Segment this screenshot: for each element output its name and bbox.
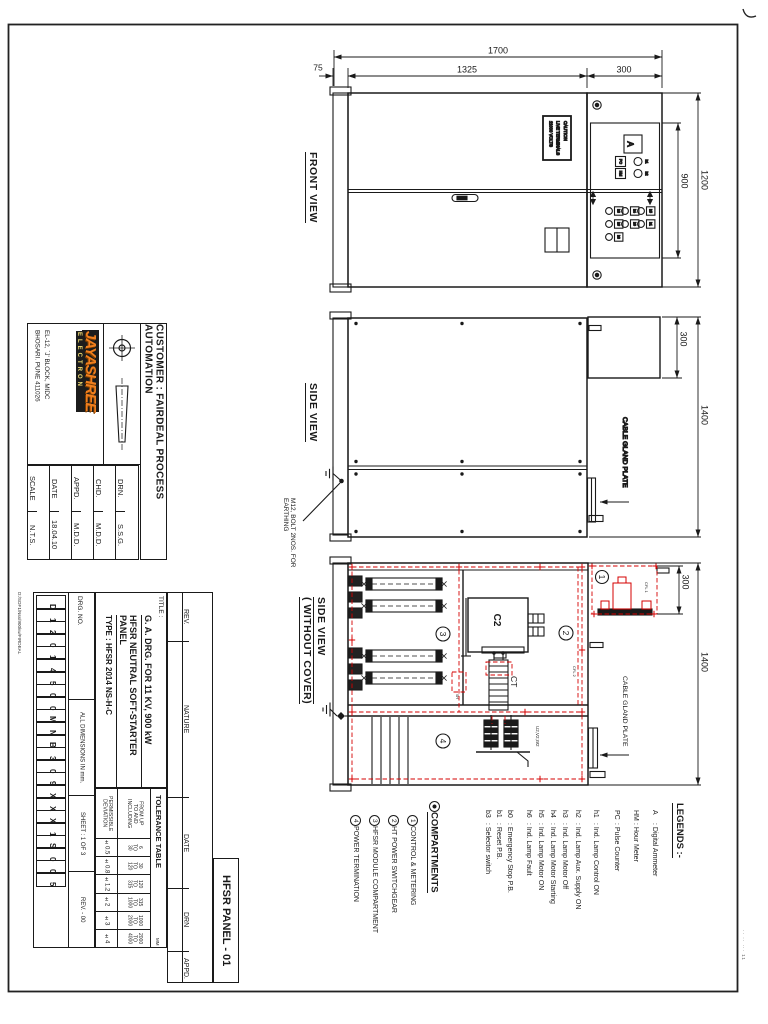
compartment-item: 3HFSR MODULE COMPARTMENT	[367, 815, 380, 933]
approval-grid: SCALEN.T.S. DATE18.04.10 APPD.M.D.D. CHD…	[27, 465, 141, 560]
tolerance-heading: TOLERANCE TABLE	[151, 789, 163, 868]
svg-text:1325: 1325	[457, 65, 477, 75]
termination-coils	[476, 715, 530, 767]
cfl2-label: CFL 2	[572, 666, 577, 678]
title-label: TITLE :	[157, 596, 164, 617]
legend-item: h1: Ind. Lamp Control ON	[592, 810, 599, 895]
side-gland-label: CABLE GLAND PLATE	[621, 417, 628, 488]
side-view: CABLE GLAND PLATE 300 1400	[303, 312, 710, 541]
sheet-no: SHEET : 1 OF 3	[69, 796, 95, 872]
svg-text:1400: 1400	[700, 405, 710, 425]
pc-label: PC	[619, 159, 623, 164]
svg-text:1200: 1200	[700, 170, 710, 190]
svg-text:900: 900	[680, 173, 690, 188]
legend-item: b0: Emergency Stop P.B.	[506, 810, 513, 893]
lamp-h2-label: h2	[645, 172, 649, 176]
earthing-note: M12, BOLT 2NOS. FOR EARTHING	[282, 498, 296, 567]
revision-table: REV. NATURE DATE DRN APPD.	[167, 592, 213, 983]
appd-value: M.D.D.	[72, 512, 81, 558]
hfsr-module-assembly	[349, 576, 447, 690]
hm-label: HM	[619, 171, 623, 177]
drg-no-boxes: D 1 2 0 1 4 5 0 0 M N B 3 0 9 X X X 1 S …	[36, 597, 66, 887]
compartment-2-marker: 2	[561, 631, 571, 636]
open-dimensions: 300 1400	[588, 563, 710, 785]
tolerance-table: TOLERANCE TABLE MM FROM UP TO AND INCLUD…	[95, 788, 167, 948]
caution-line2: LIVE TERMINALS	[556, 121, 561, 155]
drn-col-header: DRN	[182, 889, 189, 952]
chd-value: M.D.D.	[94, 512, 103, 558]
drawing-title: G. A. DRG. FOR 11 KV, 900 kW HFSR NEUTRA…	[100, 615, 153, 787]
legend-item: PC: Pulse Counter	[613, 810, 620, 871]
file-path: D:/SOF1/Nss/900kw/FIRDEAL	[17, 592, 22, 654]
appd-col-header: APPD.	[182, 952, 189, 985]
company-address: EL-12, `J' BLOCK, MIDC BHOSARI. PUNE 411…	[32, 330, 51, 402]
lamp-h1-label: h1	[645, 160, 649, 164]
front-view-label: FRONT VIEW	[305, 152, 319, 223]
legend-item: b1: Reset P.B.	[495, 810, 502, 859]
projection-symbol-icon	[104, 324, 140, 464]
drawing-sheet: CAUTION LIVE TERMINALS 11000 VOLTS A PC …	[0, 0, 768, 1024]
company-name: JAYASHREE	[82, 330, 99, 412]
svg-text:h6: h6	[617, 222, 621, 226]
compartment-item: 2HT POWER SWITCHGEAR	[386, 815, 399, 913]
compartment-item: 1CONTROL & METERING	[405, 815, 418, 905]
c2-label: C2	[491, 614, 502, 627]
svg-text:300: 300	[616, 65, 631, 75]
side-view-open-label: SIDE VIEW ( WITHOUT COVER)	[299, 597, 327, 704]
legend-item: h4: Ind. Lamp Motor Starting	[549, 810, 556, 904]
compartment-item: 4POWER TERMINATION	[348, 815, 361, 902]
svg-text:h4: h4	[633, 209, 637, 213]
ct-label: CT	[509, 676, 519, 687]
sh-label: SH	[455, 694, 459, 699]
nature-col-header: NATURE	[182, 642, 189, 798]
side-view-open: 3 C2 2 CFL 2 CT 1 CFL 1 4	[323, 557, 710, 791]
scale-label: SCALE	[28, 466, 37, 512]
cfl1-label: CFL 1	[644, 582, 649, 594]
tolerance-unit: MM	[155, 938, 160, 946]
svg-text:h3: h3	[617, 209, 621, 213]
svg-text:h5: h5	[649, 209, 653, 213]
earthing-symbol-open	[323, 703, 348, 721]
svg-text:1700: 1700	[488, 46, 508, 56]
svg-text:b1: b1	[649, 222, 653, 226]
panel-name: HFSR PANEL - 01	[213, 858, 239, 983]
legend-item: h5: Ind. Lamp Motor ON	[537, 810, 544, 890]
cfl1-component	[601, 577, 651, 609]
ammeter-label: A	[626, 141, 635, 147]
caution-line1: CAUTION	[563, 121, 568, 141]
drg-no-strip: D 1 2 0 1 4 5 0 0 M N B 3 0 9 X X X 1 S …	[33, 592, 95, 948]
front-view: CAUTION LIVE TERMINALS 11000 VOLTS A PC …	[313, 46, 709, 293]
svg-text:1400: 1400	[700, 652, 710, 672]
edge-stamp: ·· ·· ··· 11	[741, 930, 746, 961]
svg-text:75: 75	[313, 63, 323, 73]
date-label: DATE	[50, 466, 59, 512]
legends-heading: LEGENDS :-	[672, 803, 685, 858]
side-dimensions: 300 1400	[589, 317, 710, 537]
company-logo: JAYASHREE ELECTRON	[76, 330, 99, 412]
front-dimensions: 1700 1325 300 75 900 1200	[313, 46, 709, 288]
drn-label: DRN.	[116, 466, 125, 512]
bullseye-icon	[429, 801, 440, 812]
tolerance-range-col: FROM UP TO AND INCLUDING 6 TO 30 30 TO 1…	[117, 789, 151, 947]
date-value: 18.04.10	[50, 512, 59, 558]
compartment-1-marker: 1	[597, 575, 607, 580]
title-box: TITLE : G. A. DRG. FOR 11 KV, 900 kW HFS…	[95, 592, 167, 788]
tolerance-dev-col: PERMISSIBLE DEVIATION ±0.5 ±0.8 ±1.2 ±2 …	[96, 789, 117, 947]
legend-item: h3: Ind. Lamp Motor Off	[561, 810, 568, 889]
company-box: JAYASHREE ELECTRON EL-12, `J' BLOCK, MID…	[27, 323, 104, 465]
side-view-label: SIDE VIEW	[305, 383, 319, 442]
appd-label: APPD.	[72, 466, 81, 512]
all-dims-note: ALL DIMENSIONS IN mm.	[68, 699, 95, 796]
legend-item: h6: Ind. Lamp Fault	[525, 810, 532, 876]
customer-strip: CUSTOMER : FAIRDEAL PROCESS AUTOMATION	[140, 323, 167, 560]
legend-item: HM: Hour Meter	[632, 810, 639, 862]
legend-item: A: Digital Ammeter	[651, 810, 658, 876]
drn-value: S.S.G.	[116, 512, 125, 558]
compartment-3-marker: 3	[438, 632, 448, 637]
earthing-symbol	[303, 467, 344, 522]
compartment-4-marker: 4	[438, 739, 448, 744]
rev-col-header: REV.	[182, 593, 189, 642]
legend-item: b3: Selector switch	[484, 810, 491, 874]
svg-text:b3: b3	[617, 235, 621, 239]
svg-text:300: 300	[679, 331, 689, 346]
compartments-heading: COMPARTMENTS	[427, 801, 440, 893]
indicator-row: h3 h4 h5 h6 b0 b1 b3	[606, 207, 655, 241]
date-col-header: DATE	[182, 798, 189, 889]
scale-value: N.T.S.	[28, 512, 37, 558]
open-gland-label: CABLE GLAND PLATE	[621, 676, 628, 747]
caution-line3: 11000 VOLTS	[549, 121, 554, 147]
rev-no: REV. - 00	[69, 872, 95, 948]
drg-no-label: DRG. NO.	[69, 593, 83, 626]
svg-text:b0: b0	[633, 222, 637, 226]
chd-label: CHD.	[94, 466, 103, 512]
projection-symbol-box	[103, 323, 141, 465]
uvw-label: U2,V2,W2	[535, 726, 540, 747]
legend-item: h2: Ind. Lamp Aux. Supply ON	[574, 810, 581, 909]
svg-text:300: 300	[681, 574, 691, 589]
